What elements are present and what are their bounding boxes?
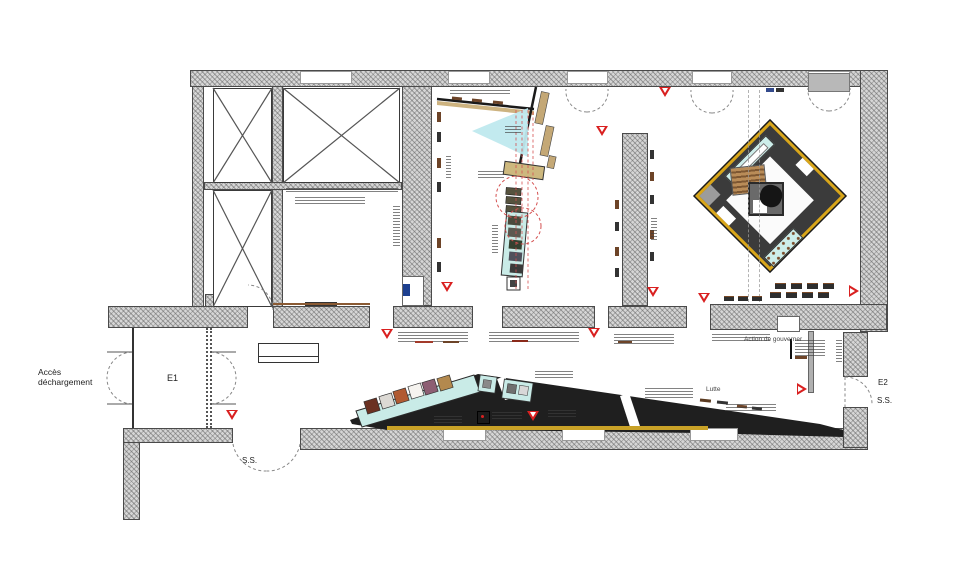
- glazed-partition: [206, 328, 208, 428]
- annotation: [446, 156, 451, 180]
- bench: [818, 292, 829, 298]
- annotation: [726, 404, 776, 412]
- display-tick: [615, 200, 619, 209]
- entrance-e1-label: E1: [167, 373, 178, 383]
- annotation: [478, 171, 504, 179]
- annotation: [651, 218, 657, 240]
- display-tick: [615, 222, 619, 231]
- display-tick: [437, 158, 441, 168]
- sign-plate: [766, 88, 774, 92]
- zone-action-label: Action de gouverner: [744, 336, 802, 343]
- bench: [807, 283, 818, 289]
- period-room-gray-piece: [699, 185, 720, 206]
- safety-marker: [588, 328, 600, 338]
- guide-line: [748, 90, 749, 302]
- access-label-line2: déchargement: [38, 378, 92, 388]
- bench: [823, 283, 834, 289]
- display-tick: [650, 252, 654, 261]
- annotation: [393, 206, 400, 248]
- blue-sign: [403, 284, 410, 296]
- display-shelf-line: [273, 303, 370, 305]
- safety-marker: [647, 287, 659, 297]
- guide-line: [759, 90, 760, 302]
- safety-marker: [596, 126, 608, 136]
- display-tick: [437, 112, 441, 122]
- safety-marker: [381, 329, 393, 339]
- annotation: [505, 126, 521, 134]
- annotation: [492, 412, 522, 421]
- annotation: [295, 197, 365, 206]
- bench: [786, 292, 797, 298]
- annotation: [450, 90, 510, 96]
- yellow-rail: [387, 426, 708, 430]
- access-label: Accès déchargement: [38, 368, 92, 387]
- display-tick: [650, 195, 654, 204]
- safety-marker: [849, 285, 859, 297]
- display-tick: [437, 132, 441, 142]
- tick-red: [512, 340, 528, 342]
- glazed-partition: [210, 328, 212, 428]
- bench: [724, 296, 734, 301]
- safety-marker: [226, 410, 238, 420]
- annotation: [489, 332, 579, 344]
- bench: [802, 292, 813, 298]
- safety-marker: [797, 383, 807, 395]
- bench: [770, 292, 781, 298]
- display-tick: [437, 182, 441, 192]
- display-tick: [650, 172, 654, 181]
- ss-left-label: S.S.: [242, 456, 257, 465]
- display-tick: [615, 268, 619, 277]
- annotation: [548, 410, 576, 418]
- annotation: [492, 225, 498, 255]
- annotation: [645, 388, 693, 398]
- annotation: [535, 371, 573, 379]
- sign-plate: [776, 88, 784, 92]
- annotation: [614, 334, 674, 346]
- table: [258, 343, 319, 363]
- safety-marker: [441, 282, 453, 292]
- display-tick: [615, 247, 619, 256]
- display-tick: [437, 238, 441, 248]
- entry-mat: [808, 73, 850, 92]
- entrance-e2-label: E2: [878, 378, 888, 387]
- display-tick: [650, 150, 654, 159]
- hearth: [748, 182, 784, 216]
- ss-right-label: S.S.: [877, 396, 892, 405]
- tick-brown: [443, 341, 459, 343]
- safety-marker: [698, 293, 710, 303]
- bench: [752, 296, 762, 301]
- zone-lutte-label: Lutte: [706, 386, 720, 393]
- annotation: [836, 340, 842, 362]
- safety-marker: [659, 87, 671, 97]
- floor-plan: Accès déchargement E1 S.S. E2 S.S. Actio…: [0, 0, 969, 570]
- safety-marker: [527, 411, 539, 421]
- wall-niche: [777, 316, 800, 332]
- annotation: [286, 188, 398, 193]
- display-tick: [437, 262, 441, 272]
- bench: [775, 283, 786, 289]
- tilted-wall-cases: [535, 92, 556, 169]
- display-case-column: [501, 187, 527, 290]
- tick-red: [415, 341, 433, 343]
- bench: [738, 296, 748, 301]
- tick-brown: [618, 341, 632, 343]
- tick-brown: [795, 356, 807, 359]
- annotation: [434, 416, 462, 423]
- info-box-dot: [481, 415, 484, 418]
- bench: [791, 283, 802, 289]
- partition-line: [132, 328, 134, 428]
